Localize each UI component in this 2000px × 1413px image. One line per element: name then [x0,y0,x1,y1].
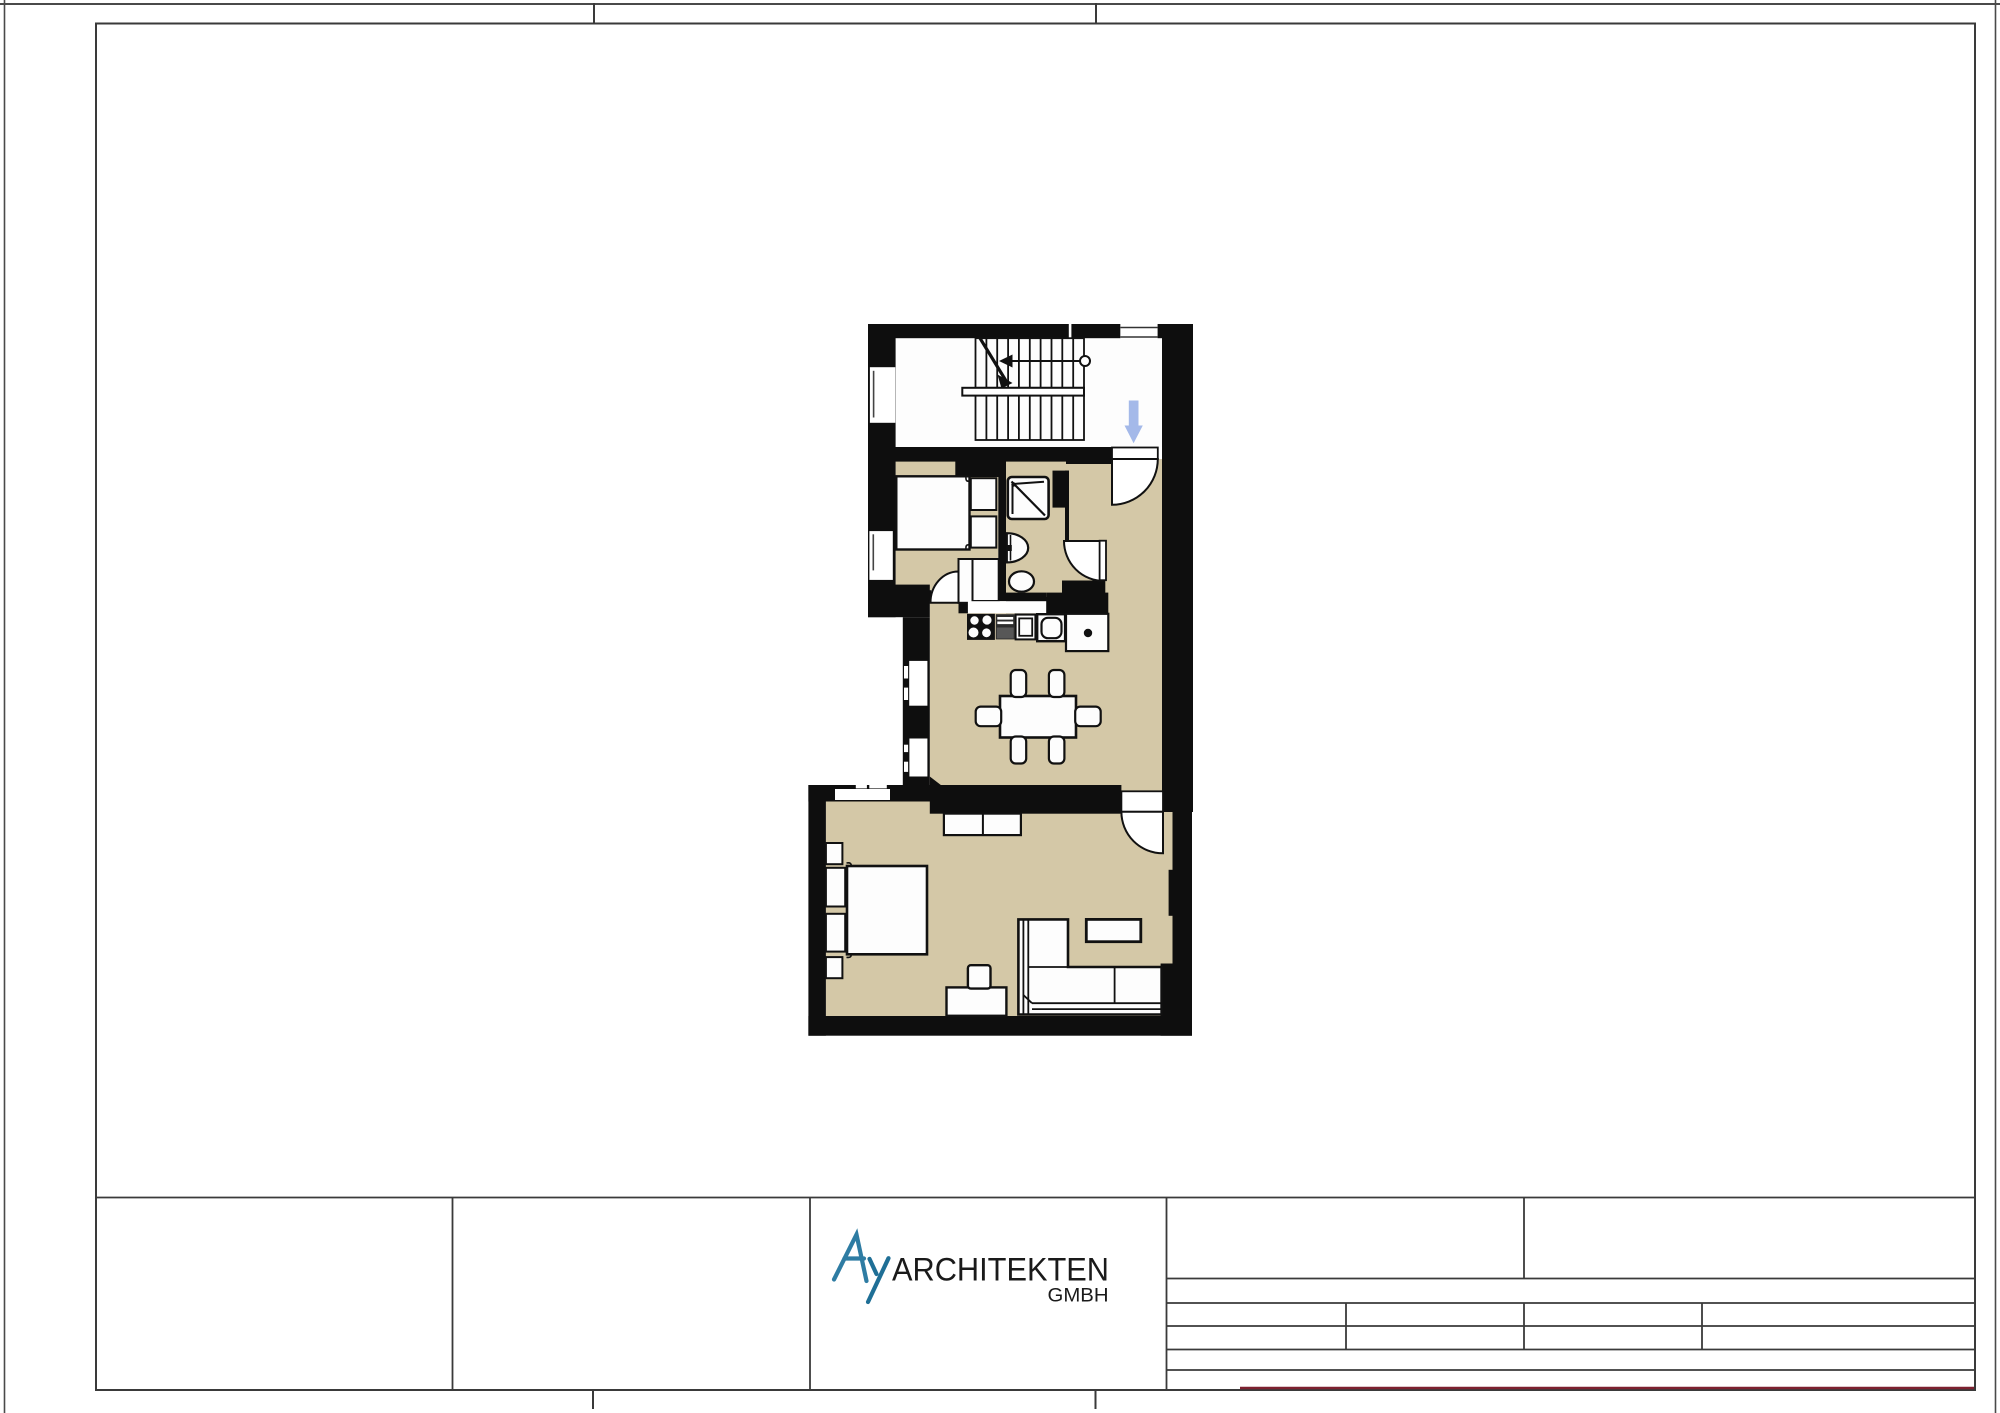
svg-text:GMBH: GMBH [1048,1285,1109,1307]
svg-text:ARCHITEKTEN: ARCHITEKTEN [892,1252,1109,1288]
